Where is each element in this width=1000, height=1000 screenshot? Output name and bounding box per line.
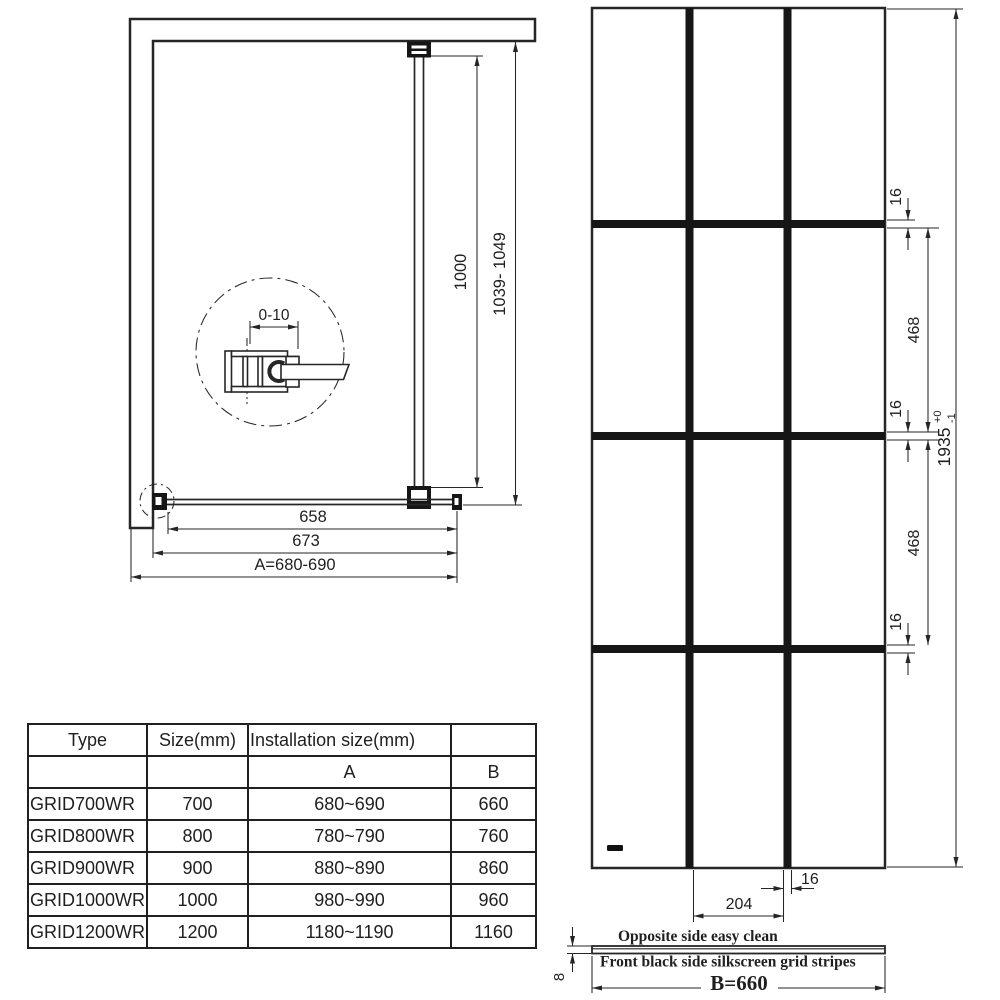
size-table: Type Size(mm) Installation size(mm) A B … <box>27 723 537 949</box>
col-header-type: Type <box>28 724 147 756</box>
grid-stripe-horizontal-3 <box>592 645 885 653</box>
dim-label-16-bottom: 16 <box>888 613 905 631</box>
table-row: GRID800WR 800 780~790 760 <box>28 820 536 852</box>
table-row: GRID700WR 700 680~690 660 <box>28 788 536 820</box>
table-row: GRID900WR 900 880~890 860 <box>28 852 536 884</box>
dim-stripe-16-mid: 16 <box>887 400 939 462</box>
table-subheader-row: A B <box>28 756 536 788</box>
dim-label-16-stripe-width: 16 <box>801 871 819 888</box>
grid-stripe-horizontal-2 <box>592 432 885 440</box>
dim-bar-length: 1000 <box>431 56 483 488</box>
front-view-drawing: 16 468 16 468 16 193 <box>555 0 1000 1000</box>
dim-bar-installation: 1039- 1049 <box>463 42 522 505</box>
dim-label-A-680-690: A=680-690 <box>254 556 335 574</box>
dim-label-16-mid: 16 <box>888 400 905 418</box>
sub-header-b: B <box>451 756 536 788</box>
dim-label-1935-tol-plus: +0 <box>932 410 944 423</box>
dim-468-bottom: 468 <box>906 440 928 645</box>
dim-label-468-top: 468 <box>906 317 923 344</box>
note-opposite-side: Opposite side easy clean <box>618 928 778 945</box>
dim-label-0-10: 0-10 <box>258 307 289 324</box>
plan-view-drawing: 0-10 1000 1039- 1049 658 673 <box>0 0 560 620</box>
dim-label-1039-1049: 1039- 1049 <box>491 232 509 316</box>
dim-468-top: 468 <box>906 228 928 432</box>
note-front-black-side: Front black side silkscreen grid stripes <box>600 954 856 971</box>
col-header-size: Size(mm) <box>147 724 248 756</box>
table-row: GRID1000WR 1000 980~990 960 <box>28 884 536 916</box>
dim-label-204: 204 <box>726 896 753 913</box>
dim-stripe-16-bottom: 16 <box>887 613 915 675</box>
support-bar-wall-bracket <box>407 42 431 58</box>
technical-drawing-page: 0-10 1000 1039- 1049 658 673 <box>0 0 1000 1000</box>
dim-label-468-bottom: 468 <box>906 530 923 557</box>
grid-stripe-horizontal-1 <box>592 220 885 228</box>
wall <box>130 19 535 528</box>
dim-height-1935: 1935 +0 -1 <box>887 9 963 867</box>
dim-adjustment-0-10: 0-10 <box>250 307 298 349</box>
dim-204: 204 <box>694 870 784 922</box>
support-bar <box>407 41 431 509</box>
table-row: GRID1200WR 1200 1180~1190 1160 <box>28 916 536 948</box>
dim-label-1935: 1935 <box>934 428 954 467</box>
glass-edge-view <box>592 946 885 954</box>
table-header-row: Type Size(mm) Installation size(mm) <box>28 724 536 756</box>
dim-label-658: 658 <box>299 508 327 526</box>
col-header-empty <box>451 724 536 756</box>
glass-section <box>281 365 349 380</box>
dim-glass-width: 673 <box>153 528 457 558</box>
glass-panel-front <box>592 8 885 868</box>
dim-label-1000: 1000 <box>452 254 470 291</box>
dim-label-8: 8 <box>551 973 568 981</box>
dim-label-673: 673 <box>292 532 320 550</box>
brand-logo <box>607 845 623 851</box>
col-header-installation: Installation size(mm) <box>248 724 451 756</box>
dim-stripe-16-top: 16 <box>887 188 939 250</box>
dim-label-1935-tol-minus: -1 <box>946 413 958 423</box>
sub-header-a: A <box>248 756 451 788</box>
dim-label-B-660: B=660 <box>710 971 767 995</box>
dim-label-16-top: 16 <box>888 188 905 206</box>
dim-thickness-8: 8 <box>551 927 591 981</box>
dim-16-stripe-width: 16 <box>761 870 819 894</box>
